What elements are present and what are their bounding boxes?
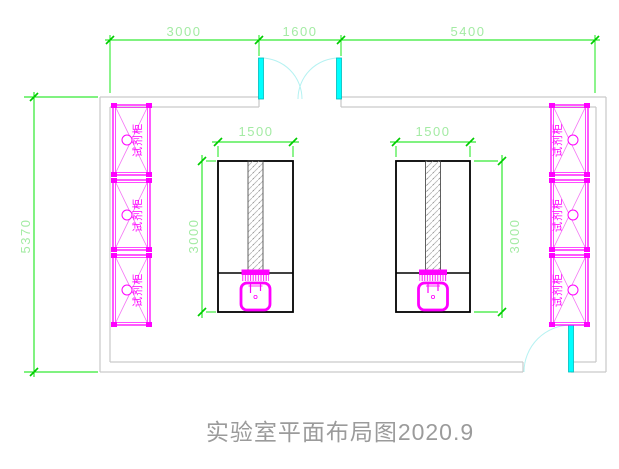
floor-plan-drawing: 3000 1600 5400 5370 试剂柜	[0, 0, 619, 469]
door-swing-arc	[261, 58, 302, 99]
cabinet-label: 试剂柜	[551, 198, 564, 233]
cabinet-label: 试剂柜	[551, 273, 564, 308]
dim-top-left: 3000	[167, 24, 202, 39]
door-leaf	[569, 325, 574, 372]
door-swing-arc	[298, 58, 339, 99]
room-walls	[100, 97, 606, 372]
cabinet-label: 试剂柜	[131, 123, 144, 158]
dimension-left-island-width: 1500	[212, 124, 299, 157]
cabinet-label: 试剂柜	[131, 273, 144, 308]
lab-bench-right: 1500 3000	[390, 124, 522, 318]
reagent-cabinet: 试剂柜	[111, 253, 152, 327]
svg-text:3000: 3000	[507, 219, 522, 254]
bench-service-spine	[426, 161, 441, 271]
dim-top-right: 5400	[451, 24, 486, 39]
dim-left-wall: 5370	[18, 219, 33, 254]
door-swing-arc	[524, 325, 571, 372]
reagent-cabinet: 试剂柜	[549, 178, 590, 252]
cabinet-label: 试剂柜	[131, 198, 144, 233]
single-door-bottom	[524, 325, 574, 372]
svg-text:1500: 1500	[416, 124, 451, 139]
drawing-title: 实验室平面布局图2020.9	[206, 419, 474, 445]
bench-service-spine	[248, 161, 263, 271]
dimension-left-island-depth: 3000	[186, 155, 216, 318]
dimension-right-island-depth: 3000	[474, 155, 522, 318]
reagent-cabinet: 试剂柜	[111, 178, 152, 252]
dimension-left-wall: 5370	[18, 92, 98, 377]
svg-text:1500: 1500	[239, 124, 274, 139]
dimension-right-island-width: 1500	[390, 124, 476, 157]
svg-text:3000: 3000	[186, 219, 201, 254]
reagent-cabinet: 试剂柜	[549, 253, 590, 327]
dim-top-middle: 1600	[283, 24, 318, 39]
reagent-cabinet: 试剂柜	[549, 103, 590, 177]
cad-floor-plan-canvas: 3000 1600 5400 5370 试剂柜	[0, 0, 619, 469]
door-leaf	[337, 58, 342, 99]
double-door-top	[259, 58, 342, 99]
dimension-chain-top: 3000 1600 5400	[105, 24, 600, 93]
cabinet-column-left: 试剂柜 试剂柜 试剂柜	[111, 103, 152, 327]
cabinet-column-right: 试剂柜 试剂柜 试剂柜	[549, 103, 590, 327]
reagent-cabinet: 试剂柜	[111, 103, 152, 177]
lab-bench-left: 1500 3000	[186, 124, 299, 318]
door-leaf	[259, 58, 264, 99]
cabinet-label: 试剂柜	[551, 123, 564, 158]
